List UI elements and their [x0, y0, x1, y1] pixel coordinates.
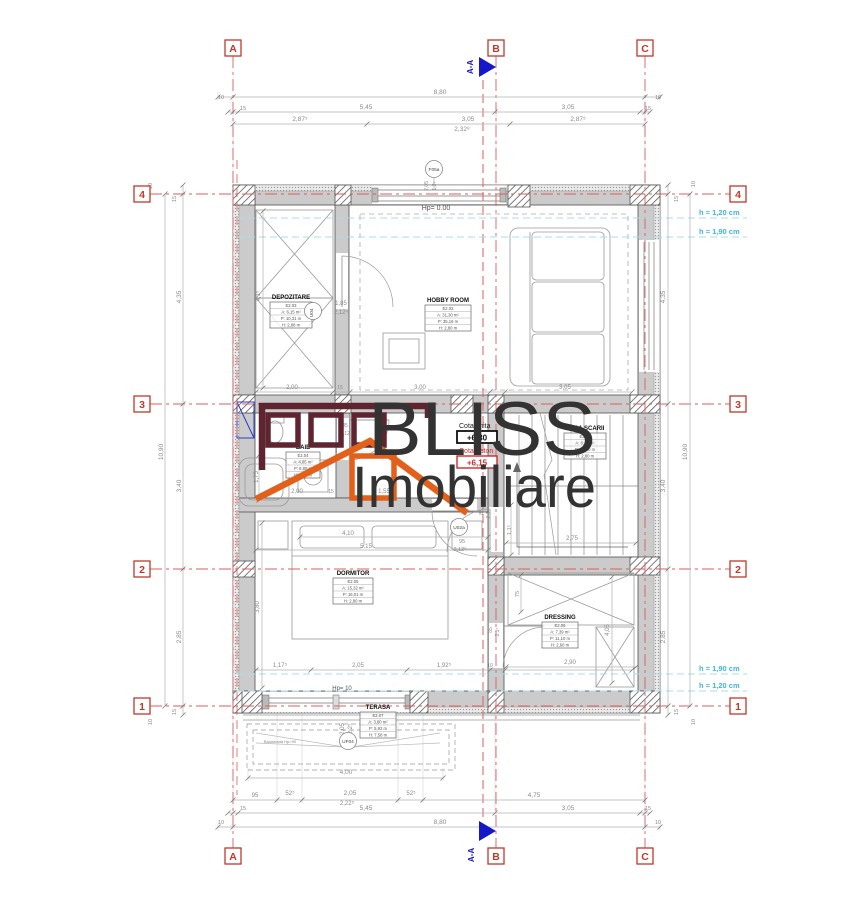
dim-label: 75: [515, 591, 521, 597]
room-perimeter: P: 35,16 m: [438, 319, 459, 324]
dim-label: 85: [488, 627, 494, 633]
floor-plan-drawing: 8,801010155,453,05152,87⁵3,052,87⁵2,32⁸9…: [0, 0, 850, 900]
axis-label: B: [492, 851, 500, 863]
axis-label: A: [229, 43, 237, 55]
dim-label: 2,85: [176, 630, 183, 643]
dim-label: 15: [240, 106, 246, 112]
door-tag-label: U04: [309, 308, 315, 317]
room-name: TERASA: [366, 705, 391, 711]
dim-label: 2,05: [344, 790, 357, 797]
dim-label: 2,00: [286, 385, 298, 391]
note-text: Hp= 10: [332, 686, 352, 692]
axis-label: 1: [139, 701, 145, 713]
dim-label: 4,00: [340, 769, 353, 776]
room-area: A: 31,30 m²: [437, 313, 459, 318]
dim-label: 10: [148, 719, 154, 725]
dim-label: 2,32⁸: [454, 126, 470, 133]
room-area: A: 3,80 m²: [368, 720, 388, 725]
height-annotation: h = 1,90 cm: [699, 664, 740, 673]
dim-label: 2,90: [564, 660, 576, 666]
dim-label: 5,45: [360, 104, 373, 111]
axis-label: 2: [735, 564, 741, 576]
room-name: DRESSING: [544, 615, 576, 621]
dim-label: 2,00: [291, 489, 303, 495]
room-name: DORMITOR: [337, 571, 370, 577]
dim-label: 15: [674, 709, 680, 715]
room-area: A: 4,85 m²: [293, 460, 313, 465]
dim-label: 3,05: [562, 104, 575, 111]
dim-label: 4,1⁵: [255, 290, 262, 301]
room-height: H: 2,80 m: [344, 599, 363, 604]
dim-label: 3,40: [660, 479, 667, 492]
dim-label: 10: [655, 95, 661, 101]
room-area: A: 15,32 m²: [342, 586, 364, 591]
dim-label: 10,90: [158, 443, 165, 460]
dim-label: 15: [337, 385, 343, 391]
room-perimeter: P: 10,31 m: [281, 316, 302, 321]
room-code: E2.07: [373, 713, 385, 718]
axis-label: 2: [139, 564, 145, 576]
room-height: H: 2,60 m: [551, 643, 570, 648]
room-code: E2.04: [298, 453, 310, 458]
room-perimeter: P: 5,92 m: [369, 726, 387, 731]
dim-label: 1,1⁵: [506, 525, 513, 535]
dim-label: 4,10: [342, 531, 354, 537]
axis-label: 3: [735, 399, 741, 411]
dim-label: 15: [674, 196, 680, 202]
dim-label: 3,05: [562, 805, 575, 812]
axis-label: 3: [139, 399, 145, 411]
dim-label: 1,75: [254, 471, 260, 483]
room-area: A: 7,39 m²: [550, 630, 570, 635]
axis-label: 4: [735, 189, 741, 201]
dim-label: 15: [328, 489, 334, 495]
dim-label: 8,80: [434, 89, 447, 96]
dim-label: 2,05: [352, 663, 364, 669]
dim-label: 15: [172, 709, 178, 715]
dim-label: 52⁵: [285, 790, 295, 797]
room-code: E2.03: [286, 303, 298, 308]
dim-label: 15: [645, 806, 651, 812]
dim-label: 95: [252, 793, 259, 799]
dim-label: 3,80: [255, 601, 261, 613]
height-annotation: h = 1,90 cm: [699, 227, 740, 236]
dim-label: 15: [645, 106, 651, 112]
room-perimeter: P: 11,10 m: [550, 636, 570, 641]
dim-label: 52⁵: [406, 790, 416, 797]
room-height: H: 2,80 m: [439, 326, 458, 331]
dim-label: 8,80: [434, 819, 447, 826]
height-annotation: h = 1,20 cm: [699, 681, 740, 690]
dim-label: 5,15: [360, 544, 372, 550]
dim-label: 2,22⁵: [340, 800, 355, 807]
room-height: H: 2,88 m: [282, 323, 301, 328]
dim-label: 15: [172, 196, 178, 202]
door-tag-label: U02a: [453, 525, 465, 531]
section-label-top: A-A: [466, 60, 475, 74]
door-tag-label: F05a: [429, 167, 440, 173]
dim-label: 1,17⁵: [273, 662, 288, 669]
dim-label: 3,05: [462, 116, 475, 123]
room-code: E2.02: [443, 306, 455, 311]
dim-label: 2,85: [660, 630, 667, 643]
dim-label: 2,87⁵: [292, 116, 308, 123]
axis-label: 1: [735, 701, 741, 713]
axis-label: 4: [139, 189, 145, 201]
room-perimeter: P: 16,01 m: [343, 592, 364, 597]
dim-label: 1,85: [335, 301, 347, 307]
axis-label: B: [492, 43, 500, 55]
dim-label: 1,92⁵: [437, 662, 452, 669]
dim-label: 4,75: [528, 792, 541, 799]
dim-label: 10: [487, 663, 493, 669]
dim-label: 2,05: [424, 181, 430, 191]
dim-label: 10: [218, 95, 224, 101]
dim-label: 5,45: [360, 805, 373, 812]
room-height: H: 7,58 m: [369, 733, 388, 738]
dim-label: 10: [691, 719, 697, 725]
room-code: E2.05: [348, 579, 360, 584]
room-code: E2.06: [555, 623, 567, 628]
dim-label: 2,75: [566, 536, 578, 542]
dim-label: 4,35: [176, 290, 183, 303]
room-area: A: 6,15 m²: [281, 310, 301, 315]
dim-label: 2,12⁴: [334, 309, 349, 316]
dim-label: 15: [240, 806, 246, 812]
dim-label: 2,12⁵: [454, 546, 467, 553]
height-annotation: h = 1,20 cm: [699, 208, 740, 217]
note-text: Hp= 0.00: [422, 205, 451, 212]
dim-label: 10,90: [682, 443, 689, 460]
watermark-subbrand-text: Imobiliare: [352, 455, 596, 520]
dim-label: 10: [691, 181, 697, 187]
dim-label: 4,05: [605, 624, 611, 636]
room-name: HOBBY ROOM: [427, 298, 469, 304]
floor-plan-page: 8,801010155,453,05152,87⁵3,052,87⁵2,32⁸9…: [0, 0, 850, 900]
dim-label: 10: [218, 820, 224, 826]
dim-label: 2,87⁵: [570, 116, 586, 123]
axis-label: C: [641, 851, 649, 863]
door-tag-label: UF04: [342, 739, 354, 745]
room-name: DEPOZITARE: [272, 295, 310, 301]
dim-label: 95: [459, 539, 465, 545]
section-label-bottom: A-A: [467, 848, 476, 862]
dim-label: 3,40: [176, 479, 183, 492]
dim-label: 2,1⁵: [495, 627, 501, 636]
dim-label: 4,35: [660, 290, 667, 303]
dim-label: 10: [655, 820, 661, 826]
note-text: Balustrada Hp=90: [264, 739, 297, 744]
axis-label: A: [229, 851, 237, 863]
dim-label: 1,2⁵: [432, 181, 438, 190]
axis-label: C: [641, 43, 649, 55]
